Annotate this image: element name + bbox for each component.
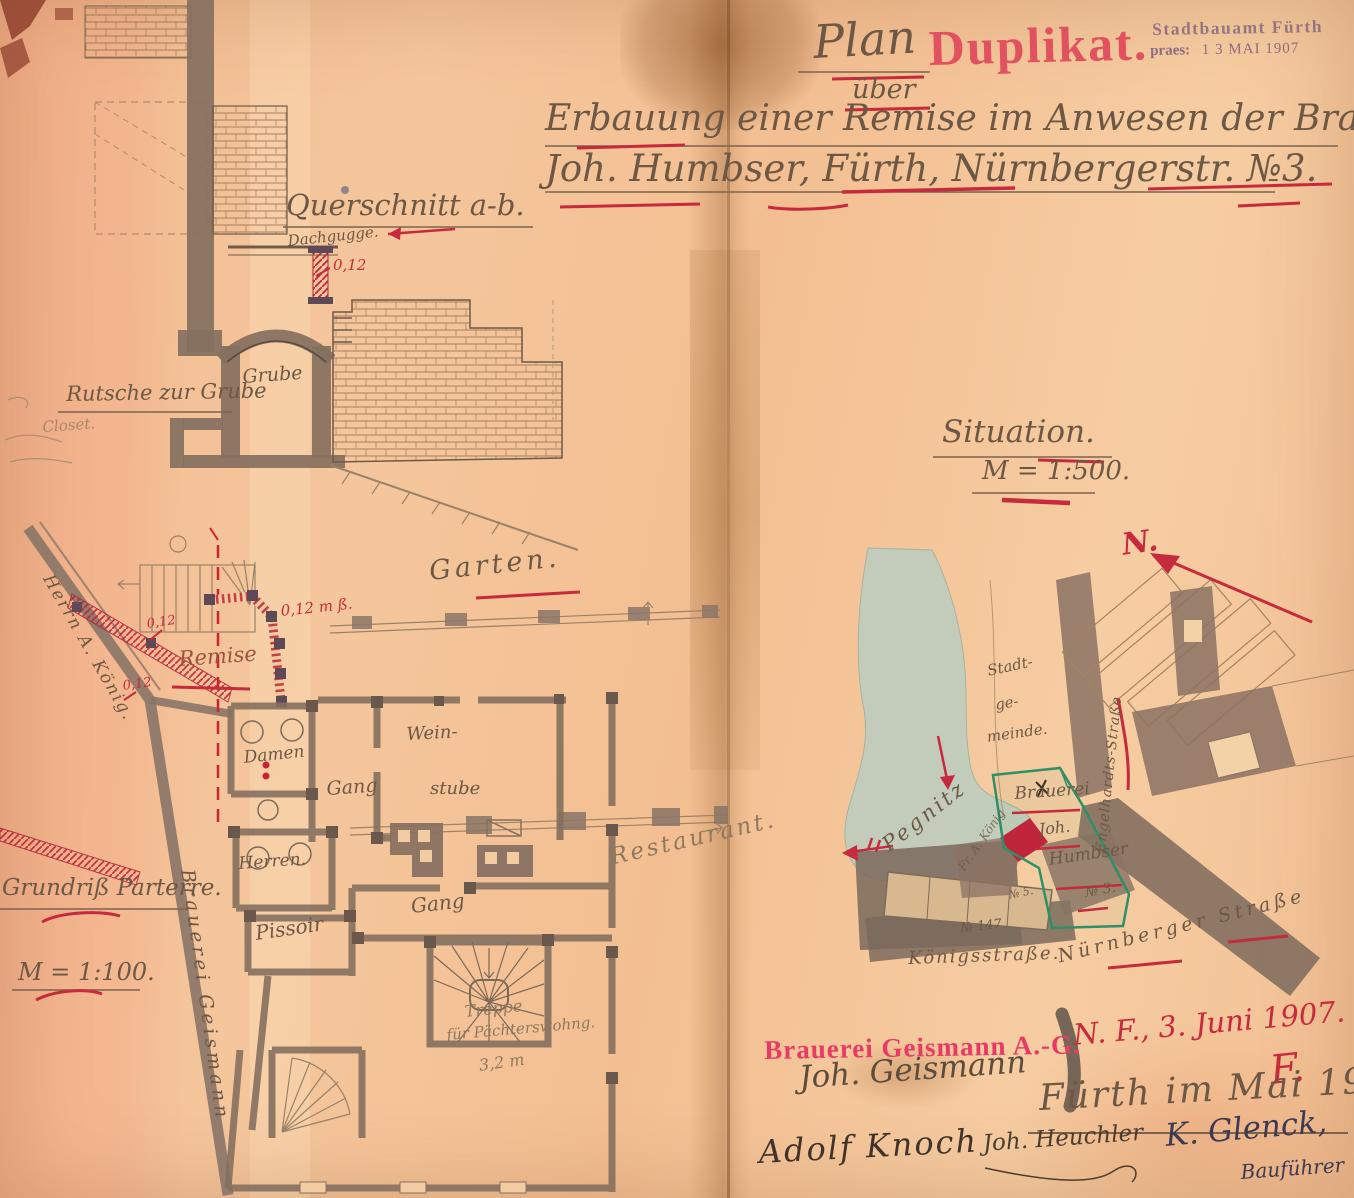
gang1-label: Gang — [326, 776, 378, 799]
margin-note: Closet. — [42, 416, 96, 435]
floor-plan-scale: M = 1:100. — [18, 960, 155, 985]
remise-label: Remise — [178, 643, 257, 670]
duplikat-stamp: Duplikat. — [928, 16, 1149, 74]
weinstube-line2: stube — [430, 780, 480, 799]
office-stamp-date: 1 3 MAI 1907 — [1202, 40, 1300, 58]
plan-document: Plan Duplikat. Stadtbauamt Fürth praes: … — [0, 0, 1354, 1198]
cross-section-dim: 0,12 — [333, 258, 366, 274]
rutsche-label: Rutsche zur Grube — [66, 380, 267, 406]
office-stamp-praes: praes: — [1150, 42, 1190, 59]
north-label: N. — [1120, 525, 1160, 561]
weinstube-line1: Wein- — [406, 723, 458, 745]
office-stamp-line1: Stadtbauamt Fürth — [1152, 17, 1323, 38]
title-line1: Erbauung einer Remise im Anwesen der Bra… — [545, 100, 1340, 138]
plan-word: Plan — [812, 13, 917, 67]
gang2-label: Gang — [410, 890, 465, 916]
title-line2: Joh. Humbser, Fürth, Nürnbergerstr. №3. — [545, 150, 1275, 189]
office-stamp-line2: praes: 1 3 MAI 1907 — [1150, 41, 1299, 59]
joh-site-label: Joh. — [1038, 819, 1071, 839]
situation-title: Situation. — [942, 416, 1095, 449]
situation-scale: M = 1:500. — [982, 458, 1130, 485]
cross-section-title: Querschnitt a-b. — [286, 190, 525, 220]
